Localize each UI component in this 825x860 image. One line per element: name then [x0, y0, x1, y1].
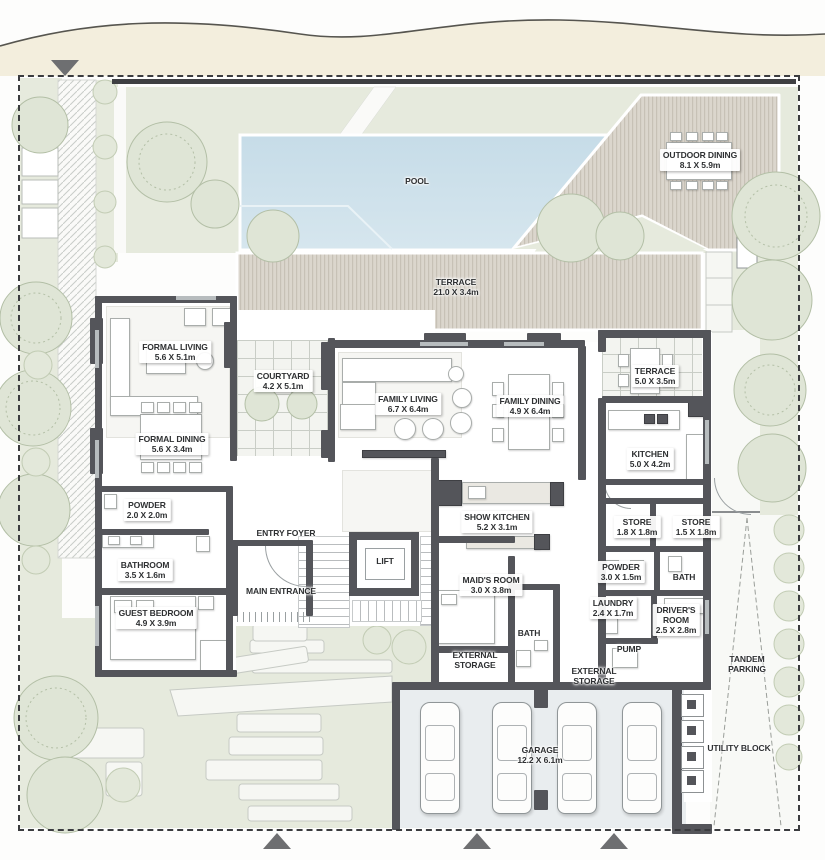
- wall: [602, 396, 706, 403]
- furniture: [362, 450, 446, 458]
- label-pool: POOL: [405, 176, 429, 186]
- label-powder-1: POWDER2.0 X 2.0m: [124, 499, 171, 521]
- floor-plan: POOLOUTDOOR DINING8.1 X 5.9mTERRACE21.0 …: [0, 0, 825, 860]
- furniture: [436, 480, 462, 506]
- furniture: [342, 358, 452, 382]
- label-store-1: STORE1.8 X 1.8m: [614, 516, 661, 538]
- furniture: [340, 404, 376, 430]
- furniture: [200, 640, 228, 672]
- furniture: [534, 640, 548, 651]
- window: [504, 342, 544, 346]
- wall: [703, 330, 711, 690]
- road-band: [0, 20, 825, 76]
- furniture: [198, 596, 214, 610]
- label-powder-2: POWDER3.0 X 1.5m: [598, 561, 645, 583]
- wall: [306, 540, 313, 616]
- label-store-2: STORE1.5 X 1.8m: [673, 516, 720, 538]
- furniture: [450, 412, 472, 434]
- furniture: [452, 388, 472, 408]
- furniture: [552, 382, 564, 396]
- window: [420, 342, 468, 346]
- furniture: [670, 181, 682, 190]
- window: [95, 606, 99, 646]
- wall: [231, 540, 238, 616]
- furniture: [104, 494, 117, 509]
- label-formal-dining: FORMAL DINING5.6 X 3.4m: [135, 433, 208, 455]
- furniture: [441, 594, 457, 605]
- wall: [224, 322, 237, 368]
- label-terrace-main: TERRACE21.0 X 3.4m: [433, 277, 478, 297]
- furniture: [108, 536, 120, 545]
- furniture: [702, 181, 714, 190]
- furniture: [657, 414, 668, 424]
- entry-marker-icon: [51, 60, 79, 76]
- window: [176, 296, 216, 300]
- furniture: [157, 402, 170, 413]
- furniture: [550, 482, 564, 506]
- furniture: [618, 374, 629, 387]
- furniture: [686, 132, 698, 141]
- label-guest-bedroom: GUEST BEDROOM4.9 X 3.9m: [116, 607, 197, 629]
- wall: [236, 540, 308, 546]
- rug: [342, 470, 434, 532]
- label-entry-foyer: ENTRY FOYER: [257, 528, 316, 538]
- furniture: [173, 462, 186, 473]
- wall: [230, 296, 237, 461]
- furniture: [141, 402, 154, 413]
- label-tandem-parking: TANDEMPARKING: [728, 654, 766, 674]
- label-lift: LIFT: [376, 556, 394, 566]
- wall: [95, 670, 237, 677]
- window: [705, 600, 709, 634]
- label-main-entrance: MAIN ENTRANCE: [246, 586, 316, 596]
- wall: [602, 479, 706, 485]
- furniture: [618, 354, 629, 367]
- furniture: [492, 382, 504, 396]
- furniture: [422, 418, 444, 440]
- wall: [672, 824, 712, 834]
- entry-steps: [237, 612, 311, 622]
- label-bath-2: BATH: [673, 572, 696, 582]
- label-show-kitchen: SHOW KITCHEN5.2 X 3.1m: [461, 511, 532, 533]
- furniture: [716, 132, 728, 141]
- car: [557, 702, 597, 814]
- furniture: [173, 402, 186, 413]
- furniture: [516, 650, 531, 667]
- label-utility-block: UTILITY BLOCK: [707, 743, 770, 753]
- label-courtyard: COURTYARD4.2 X 5.1m: [254, 370, 313, 392]
- ac-unit: [681, 746, 704, 769]
- furniture: [141, 462, 154, 473]
- wall: [578, 346, 586, 480]
- furniture: [670, 132, 682, 141]
- label-external-storage-1: EXTERNALSTORAGE: [452, 650, 497, 670]
- north-fence: [112, 79, 796, 84]
- furniture: [448, 366, 464, 382]
- wall: [97, 588, 233, 595]
- label-bath-1: BATH: [518, 628, 541, 638]
- label-garage: GARAGE12.2 X 6.1m: [517, 745, 562, 765]
- window: [95, 330, 99, 368]
- furniture: [552, 428, 564, 442]
- wall: [534, 688, 548, 708]
- furniture: [189, 402, 202, 413]
- car: [420, 702, 460, 814]
- label-bathroom: BATHROOM3.5 X 1.6m: [118, 559, 173, 581]
- furniture: [702, 132, 714, 141]
- label-pump: PUMP: [617, 644, 641, 654]
- furniture: [157, 462, 170, 473]
- wall: [431, 458, 439, 690]
- furniture: [394, 418, 416, 440]
- furniture: [534, 534, 550, 550]
- wall: [392, 682, 400, 830]
- wall: [328, 338, 335, 462]
- entry-marker-icon: [263, 833, 291, 849]
- entry-marker-icon: [463, 833, 491, 849]
- wall: [598, 398, 606, 690]
- window: [705, 420, 709, 464]
- furniture: [716, 181, 728, 190]
- entry-marker-icon: [600, 833, 628, 849]
- label-external-storage-2: EXTERNALSTORAGE: [571, 666, 616, 686]
- stairs: [352, 600, 422, 622]
- label-drivers-room: DRIVER'SROOM2.5 X 2.8m: [653, 604, 700, 636]
- wall: [598, 330, 711, 338]
- label-family-dining: FAMILY DINING4.9 X 6.4m: [496, 395, 563, 417]
- furniture: [644, 414, 655, 424]
- wall: [431, 536, 515, 543]
- wall: [534, 790, 548, 810]
- wall: [97, 486, 230, 492]
- ac-unit: [681, 720, 704, 743]
- furniture: [189, 462, 202, 473]
- furniture: [468, 486, 486, 499]
- label-family-living: FAMILY LIVING6.7 X 6.4m: [375, 393, 441, 415]
- label-laundry: LAUNDRY2.4 X 1.7m: [590, 597, 637, 619]
- furniture: [196, 536, 210, 552]
- label-formal-living: FORMAL LIVING5.6 X 5.1m: [139, 341, 211, 363]
- label-terrace-small: TERRACE5.0 X 3.5m: [632, 365, 679, 387]
- furniture: [110, 318, 130, 406]
- label-kitchen: KITCHEN5.0 X 4.2m: [627, 448, 674, 470]
- furniture: [686, 181, 698, 190]
- ac-unit: [681, 770, 704, 793]
- window: [95, 440, 99, 478]
- furniture: [668, 556, 682, 572]
- ac-unit: [681, 694, 704, 717]
- furniture: [492, 428, 504, 442]
- furniture: [130, 536, 142, 545]
- wall: [553, 584, 560, 686]
- car: [622, 702, 662, 814]
- furniture: [184, 308, 206, 326]
- wall: [97, 529, 209, 535]
- label-outdoor-dining: OUTDOOR DINING8.1 X 5.9m: [660, 149, 740, 171]
- furniture: [686, 434, 704, 482]
- label-maids-room: MAID'S ROOM3.0 X 3.8m: [459, 574, 522, 596]
